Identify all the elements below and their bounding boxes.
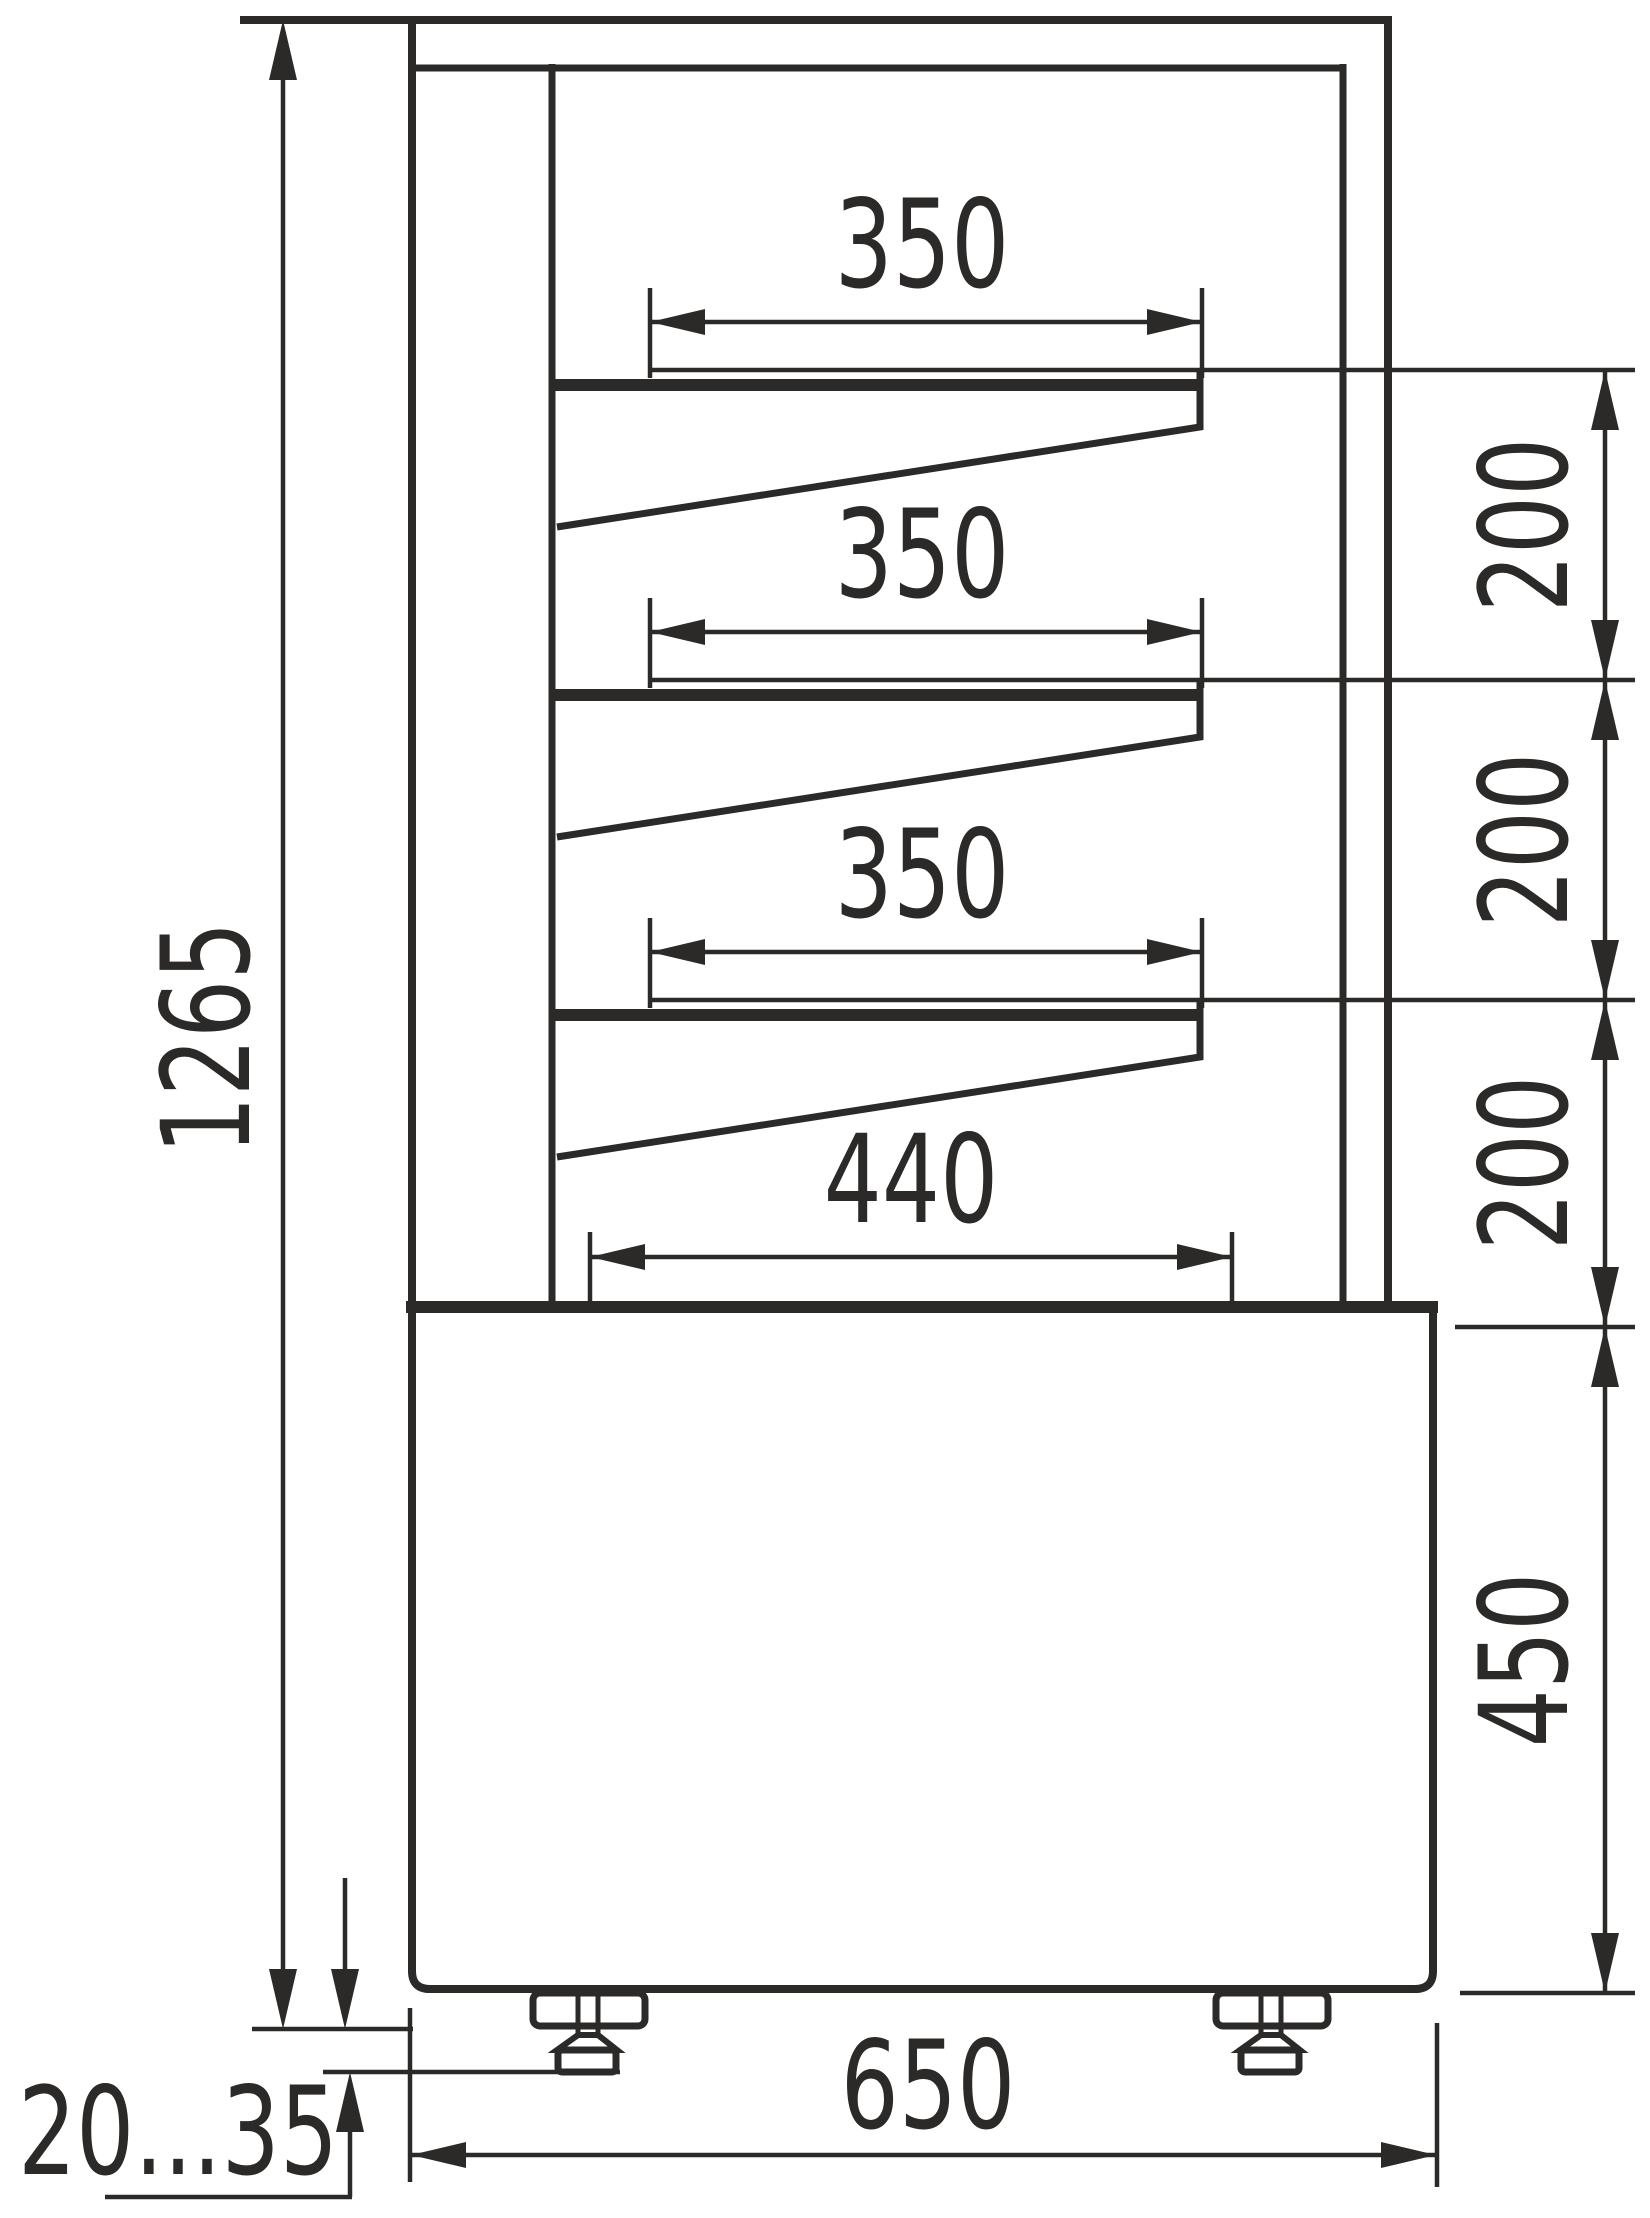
drawing-page: 350 350 350 440: [0, 0, 1650, 2218]
chain-arrow-icon: [1591, 1267, 1619, 1327]
shelf-gap-1-label: 200: [1455, 438, 1596, 613]
foot-left-flange: [533, 1993, 645, 2026]
overall-depth-label: 650: [841, 2016, 1016, 2157]
chain-arrow-icon: [1591, 1933, 1619, 1993]
foot-right-pad: [1241, 2050, 1299, 2072]
chain-arrow-icon: [1591, 1327, 1619, 1387]
shelf-1-arrow-right-icon: [1147, 309, 1202, 335]
foot-left-pad: [558, 2050, 616, 2072]
well-arrow-right-icon: [1177, 1244, 1232, 1270]
feet-arrow-up-icon: [336, 2072, 364, 2132]
shelf-1-arrow-left-icon: [650, 309, 705, 335]
feet-arrow-down-icon: [331, 1969, 359, 2029]
shelf-3-depth-label: 350: [835, 805, 1010, 946]
chain-arrow-icon: [1591, 1000, 1619, 1060]
depth-arrow-left-icon: [411, 2142, 466, 2168]
right-dim-chain: 200 200 200 450: [1455, 370, 1635, 1993]
chain-arrow-icon: [1591, 680, 1619, 740]
well-depth-label: 440: [824, 1110, 999, 1251]
shelf-2-arrow-right-icon: [1147, 619, 1202, 645]
overall-height-dim: 1265: [137, 20, 297, 2029]
shelf-gap-3-label: 200: [1455, 1076, 1596, 1251]
base-cabinet: [406, 1307, 1438, 1989]
well-arrow-left-icon: [590, 1244, 645, 1270]
foot-right-flange: [1216, 1993, 1328, 2026]
display-case-drawing: 350 350 350 440: [0, 0, 1650, 2218]
chain-arrow-icon: [1591, 940, 1619, 1000]
shelf-gap-2-label: 200: [1455, 753, 1596, 928]
shelf-2-arrow-left-icon: [650, 619, 705, 645]
overall-height-label: 1265: [137, 922, 278, 1155]
height-arrow-up-icon: [269, 20, 297, 80]
foot-left: [533, 1993, 645, 2072]
base-height-label: 450: [1455, 1573, 1596, 1748]
chain-arrow-icon: [1591, 620, 1619, 680]
shelf-3-arrow-right-icon: [1147, 939, 1202, 965]
shelf-2-depth-label: 350: [835, 485, 1010, 626]
shelf-3-arrow-left-icon: [650, 939, 705, 965]
height-arrow-down-icon: [269, 1969, 297, 2029]
depth-arrow-right-icon: [1381, 2142, 1436, 2168]
shelf-1-depth-label: 350: [835, 175, 1010, 316]
foot-right: [1216, 1993, 1328, 2072]
feet-adjust-label: 20...35: [18, 2062, 338, 2203]
base-body: [412, 1311, 1433, 1989]
chain-arrow-icon: [1591, 370, 1619, 430]
